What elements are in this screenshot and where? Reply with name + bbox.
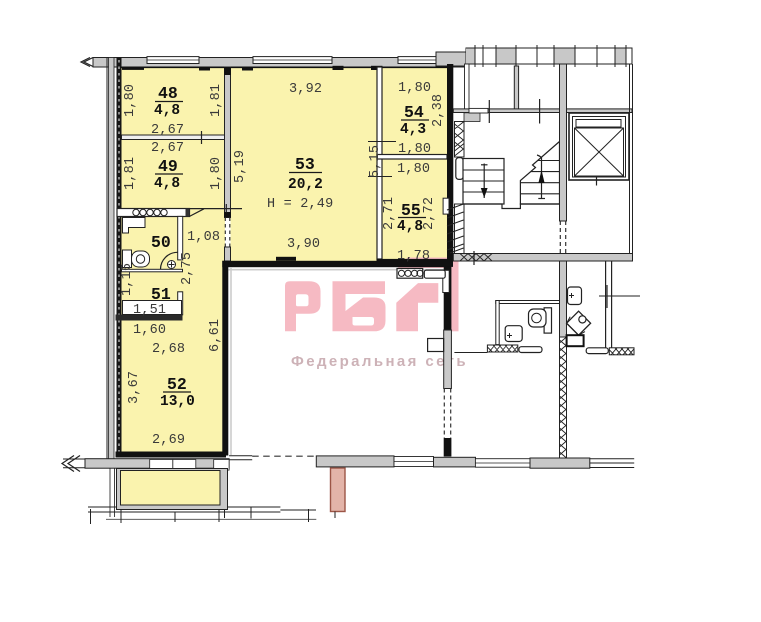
svg-text:1,80: 1,80 [209, 157, 224, 190]
svg-text:1,08: 1,08 [187, 230, 220, 245]
svg-text:1,80: 1,80 [123, 84, 138, 117]
svg-text:3,92: 3,92 [289, 82, 322, 97]
svg-text:51: 51 [151, 285, 171, 304]
svg-text:Федеральная сеть: Федеральная сеть [291, 353, 468, 370]
svg-text:1,80: 1,80 [398, 142, 431, 157]
svg-text:2,67: 2,67 [151, 141, 184, 156]
svg-text:6,61: 6,61 [208, 319, 223, 352]
svg-text:2,75: 2,75 [180, 252, 195, 285]
svg-text:1,81: 1,81 [123, 157, 138, 190]
svg-text:1,80: 1,80 [397, 162, 430, 177]
svg-text:2,69: 2,69 [152, 433, 185, 448]
svg-text:20,2: 20,2 [288, 177, 323, 193]
svg-text:48: 48 [158, 84, 178, 103]
svg-text:4,3: 4,3 [400, 122, 426, 138]
svg-text:2,71: 2,71 [382, 197, 397, 230]
svg-text:3,90: 3,90 [287, 237, 320, 252]
svg-text:1,80: 1,80 [398, 81, 431, 96]
svg-text:2,67: 2,67 [151, 123, 184, 138]
svg-text:3,67: 3,67 [127, 371, 142, 404]
svg-text:4,8: 4,8 [154, 103, 180, 119]
svg-text:1,16: 1,16 [120, 263, 135, 296]
svg-text:2,72: 2,72 [422, 197, 437, 230]
svg-text:52: 52 [167, 375, 187, 394]
svg-text:53: 53 [295, 155, 315, 174]
svg-text:5,15: 5,15 [368, 145, 383, 178]
svg-text:4,8: 4,8 [397, 219, 423, 235]
svg-text:1,81: 1,81 [209, 84, 224, 117]
svg-text:50: 50 [151, 233, 171, 252]
svg-text:49: 49 [158, 157, 178, 176]
svg-text:1,51: 1,51 [133, 303, 166, 318]
svg-text:2,38: 2,38 [431, 94, 446, 127]
svg-text:13,0: 13,0 [160, 394, 195, 410]
svg-text:54: 54 [404, 103, 424, 122]
svg-text:2,68: 2,68 [152, 342, 185, 357]
svg-text:H = 2,49: H = 2,49 [267, 197, 333, 212]
svg-text:1,78: 1,78 [397, 249, 430, 264]
svg-text:1,60: 1,60 [133, 323, 166, 338]
svg-text:5,19: 5,19 [233, 150, 248, 183]
svg-text:4,8: 4,8 [154, 176, 180, 192]
